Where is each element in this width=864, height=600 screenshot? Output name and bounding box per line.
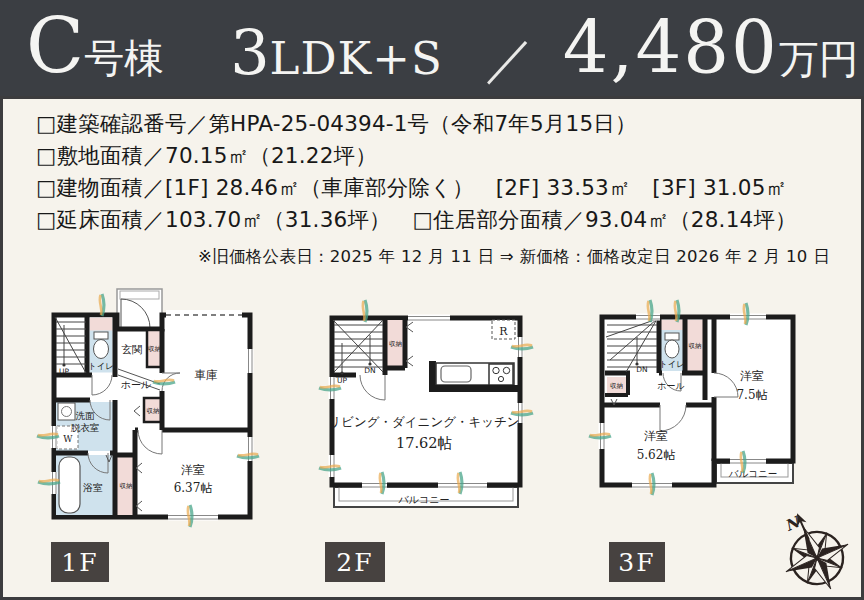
price-revision-note: ※旧価格公表日：2025 年 12 月 11 日 ⇒ 新価格：価格改定日 202… (198, 246, 830, 268)
room-label-washroom-2: 脱衣室 (71, 422, 100, 433)
room-label-west-room2-size: 5.62帖 (637, 448, 676, 462)
floor-plan-2f: 収納 R UP DN リビング・ダイニング・キッチン 17.62帖 バルコニー (319, 300, 533, 507)
property-details: □建築確認番号／第HPA-25-04394-1号（令和7年5月15日） □敷地面… (36, 108, 836, 236)
price: 4,480万円 (563, 12, 859, 84)
plan-suffix: LDK+S (270, 32, 443, 85)
floor-tab-1f-label: 1F (61, 548, 98, 577)
room-label-washroom-1: 洗面 (76, 410, 96, 421)
price-unit: 万円 (779, 36, 859, 82)
label-down-2f: DN (364, 366, 375, 375)
room-label-hall-3f: ホール (657, 381, 684, 391)
floor-plan-1f: 玄関 トイレ ホール 車庫 収納 収納 収納 洗面 脱衣室 W 浴室 洋室 6.… (37, 289, 259, 527)
room-label-west-room1: 洋室 (740, 369, 764, 383)
room-label-west-room-1f: 洋室 (181, 463, 205, 477)
building-letter: C (26, 1, 84, 90)
floor-tab-2f-label: 2F (336, 548, 373, 577)
header-slash: ／ (485, 34, 535, 84)
label-up-2f: UP (337, 376, 347, 385)
room-label-storage-room: 収納 (120, 482, 133, 490)
price-number: 4,480 (563, 6, 779, 90)
room-label-balcony-3f: バルコニー (728, 468, 777, 479)
floor-tab-3f-label: 3F (618, 548, 655, 577)
room-label-storage-hall: 収納 (147, 407, 160, 415)
floor-plan-type: 3LDK+S (230, 22, 443, 84)
room-label-west-room1-size: 7.5帖 (736, 388, 767, 402)
detail-line-confirmation: □建築確認番号／第HPA-25-04394-1号（令和7年5月15日） (36, 108, 836, 140)
header-bar: C号棟 3LDK+S ／ 4,480万円 (0, 0, 864, 96)
room-label-washer: W (63, 434, 73, 444)
room-label-bath: 浴室 (83, 482, 103, 493)
detail-line-floor-area: □延床面積／103.70㎡（31.36坪） □住居部分面積／93.04㎡（28.… (36, 204, 836, 236)
floor-plan-3f: トイレ 収納 収納 DN ホール 洋室 7.5帖 洋室 5.62帖 バルコニー (589, 300, 793, 495)
room-label-toilet-1f: トイレ (88, 361, 114, 371)
room-label-ldk-size: 17.62帖 (396, 435, 452, 451)
floor-tab-1f: 1F (51, 542, 109, 582)
room-label-toilet-3f: トイレ (659, 359, 685, 369)
label-up-1f: UP (59, 367, 69, 376)
detail-line-building-area: □建物面積／[1F] 28.46㎡（車庫部分除く） [2F] 33.53㎡ [3… (36, 172, 836, 204)
plan-number: 3 (230, 16, 269, 89)
room-label-storage-entrance: 収納 (148, 345, 161, 353)
floor-tab-3f: 3F (609, 542, 665, 582)
room-label-storage-2f: 収納 (389, 340, 402, 348)
building-name: C号棟 (26, 8, 164, 84)
label-fridge: R (499, 325, 508, 338)
room-label-storage-3f-a: 収納 (689, 342, 702, 350)
room-label-hall-1f: ホール (121, 379, 152, 390)
room-label-west-room-size-1f: 6.37帖 (174, 481, 213, 495)
building-suffix: 号棟 (84, 35, 164, 81)
room-label-ldk: リビング・ダイニング・キッチン (328, 414, 519, 429)
room-label-balcony-2f: バルコニー (398, 494, 450, 505)
floor-plans: 玄関 トイレ ホール 車庫 収納 収納 収納 洗面 脱衣室 W 浴室 洋室 6.… (35, 283, 835, 528)
room-label-storage-3f-b: 収納 (610, 382, 623, 390)
compass-icon: N (770, 498, 860, 594)
floor-tab-2f: 2F (325, 542, 385, 582)
detail-line-land-area: □敷地面積／70.15㎡（21.22坪） (36, 140, 836, 172)
room-label-west-room2: 洋室 (644, 429, 668, 443)
room-label-entrance: 玄関 (122, 343, 143, 355)
label-down-3f: DN (636, 365, 647, 374)
room-label-garage: 車庫 (195, 368, 219, 382)
property-flyer: { "header": { "building_letter": "C", "b… (0, 0, 864, 600)
